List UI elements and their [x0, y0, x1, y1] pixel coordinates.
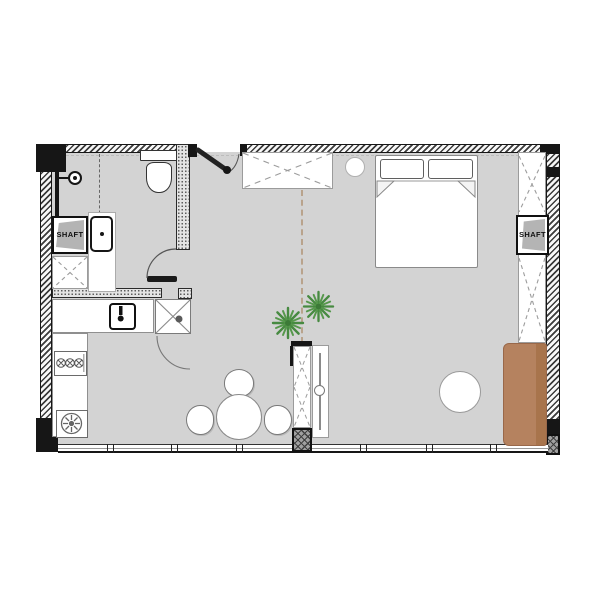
appliance-box	[155, 299, 191, 334]
side-table	[439, 371, 481, 413]
appliance-door-arc	[155, 334, 192, 371]
shower-head-icon	[68, 171, 82, 185]
dining-chair	[224, 369, 254, 397]
window-mullion	[236, 444, 243, 453]
pendant-light	[345, 157, 365, 177]
column-top-left	[36, 144, 66, 172]
washer-drum-icon	[57, 411, 86, 436]
shaft-right-label: SHAFT	[519, 231, 546, 239]
window-mullion	[360, 444, 367, 453]
wall-left	[40, 162, 52, 420]
vanity-sink	[90, 216, 113, 252]
blanket-fold-icon	[376, 156, 476, 266]
closet-left-x-icon	[53, 257, 87, 288]
closet-right-x-top-icon	[519, 156, 545, 212]
toilet-bowl	[146, 162, 172, 193]
sofa	[503, 343, 547, 446]
kitchen-sink	[109, 303, 136, 330]
window-mullion	[171, 444, 178, 453]
floor-plan: SHAFT	[0, 0, 600, 600]
closet-right-x-bottom-icon	[519, 258, 545, 341]
wardrobe	[242, 152, 333, 189]
toilet-tank	[140, 150, 177, 161]
divider-cabinet	[293, 346, 311, 428]
window-mullion	[426, 444, 433, 453]
window-mullion	[107, 444, 114, 453]
shaft-left-label: SHAFT	[57, 231, 84, 239]
window-mullion	[490, 444, 497, 453]
kitchen-counter-top	[52, 299, 154, 333]
bathroom-wall-stub	[178, 288, 192, 299]
wardrobe-x-icon	[243, 153, 332, 188]
tv-mount-knob	[314, 385, 325, 396]
bathroom-door-arc	[145, 246, 181, 282]
plant-icon	[271, 306, 305, 340]
stove	[54, 351, 87, 376]
dining-chair	[186, 405, 214, 435]
plant-icon	[302, 290, 335, 323]
divider-x-icon	[294, 347, 310, 427]
entry-door	[194, 146, 242, 178]
dining-chair	[264, 405, 292, 435]
shaft-left: SHAFT	[52, 216, 88, 254]
column-bottom-right	[546, 419, 560, 434]
bathroom-wall-right	[176, 144, 190, 250]
divider-column	[292, 428, 312, 452]
wall-right	[546, 144, 560, 455]
dining-table	[216, 394, 262, 440]
faucet-icon	[111, 305, 133, 327]
burners-icon	[55, 352, 85, 374]
column-bottom-right-hatch	[546, 434, 560, 455]
washing-machine	[56, 410, 88, 438]
sofa-backrest	[536, 344, 546, 445]
closet-left	[52, 256, 88, 289]
appliance-x-icon	[156, 300, 190, 333]
wall-right-black-band	[546, 167, 560, 177]
shaft-right: SHAFT	[516, 215, 549, 255]
double-bed	[375, 155, 478, 268]
